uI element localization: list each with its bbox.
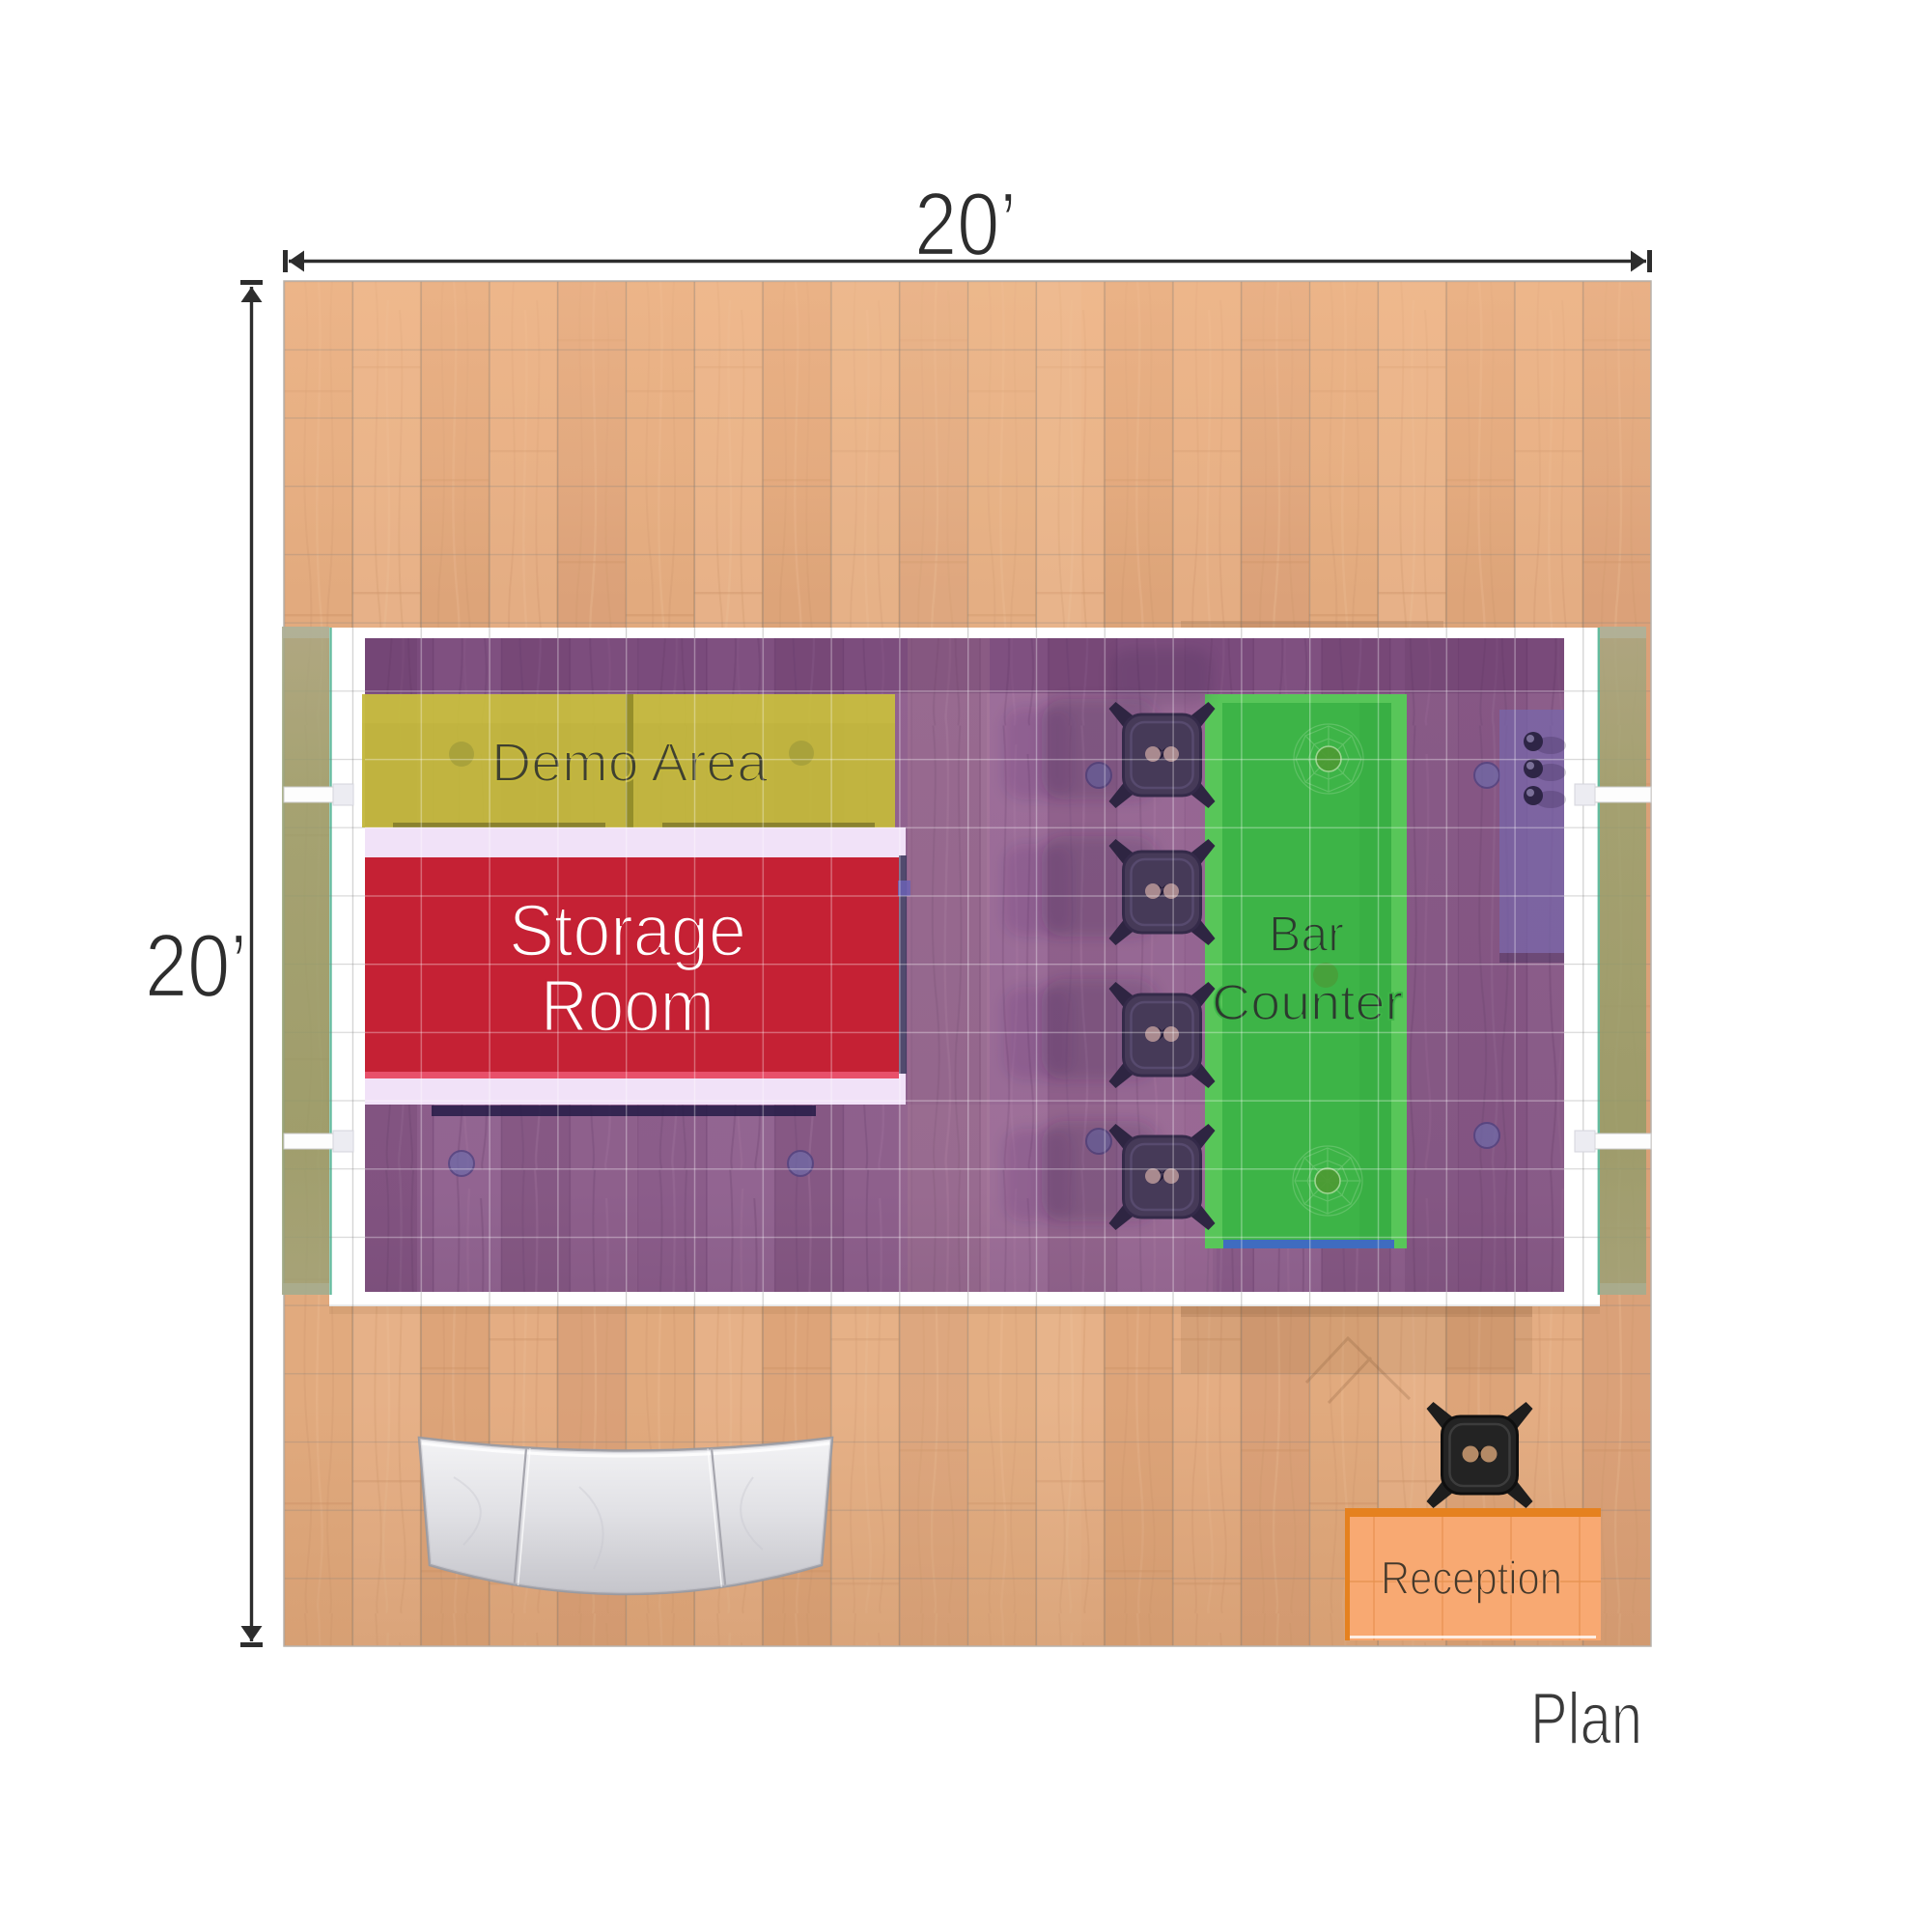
svg-text:20’: 20’ — [145, 915, 247, 1016]
svg-text:Reception: Reception — [1381, 1554, 1562, 1605]
svg-text:Plan: Plan — [1530, 1678, 1642, 1760]
svg-text:20’: 20’ — [914, 174, 1017, 274]
